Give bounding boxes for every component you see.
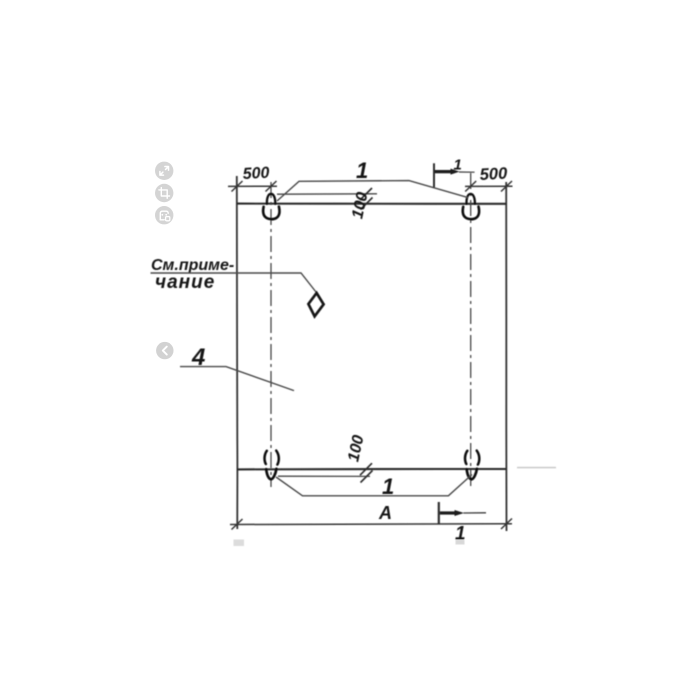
svg-text:1: 1 (382, 474, 394, 499)
svg-text:чание: чание (155, 272, 215, 293)
svg-text:А: А (378, 503, 392, 523)
svg-text:1: 1 (454, 157, 462, 174)
svg-text:500: 500 (479, 165, 508, 184)
svg-text:1: 1 (356, 158, 368, 183)
svg-text:500: 500 (242, 165, 270, 183)
